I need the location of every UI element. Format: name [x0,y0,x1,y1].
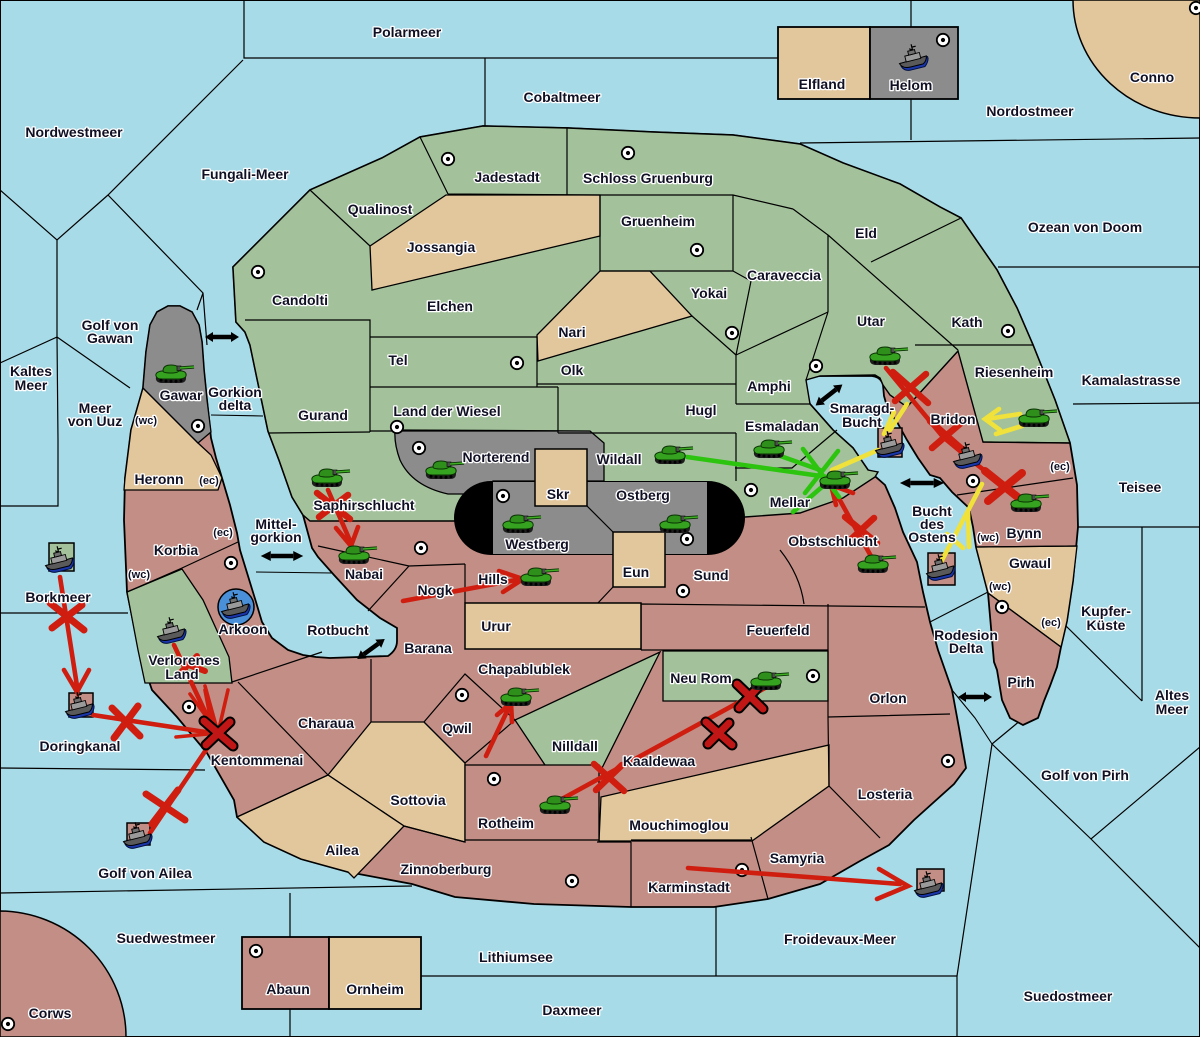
svg-text:Barana: Barana [404,640,452,656]
svg-text:Kamalastrasse: Kamalastrasse [1082,372,1181,388]
svg-text:Qualinost: Qualinost [348,201,413,217]
svg-text:Nabai: Nabai [345,566,383,582]
svg-text:Hugl: Hugl [685,402,716,418]
svg-text:Polarmeer: Polarmeer [373,24,442,40]
svg-text:Land der Wiesel: Land der Wiesel [393,403,500,419]
svg-text:Froidevaux-Meer: Froidevaux-Meer [784,931,897,947]
svg-text:Suedostmeer: Suedostmeer [1024,988,1113,1004]
svg-text:Gawar: Gawar [160,387,203,403]
svg-text:Olk: Olk [561,362,584,378]
svg-text:Ostberg: Ostberg [616,487,670,503]
svg-text:Rotbucht: Rotbucht [307,622,369,638]
svg-text:Daxmeer: Daxmeer [542,1002,602,1018]
svg-text:Meer: Meer [15,377,48,393]
svg-text:Delta: Delta [949,640,983,656]
svg-text:Skr: Skr [547,486,570,502]
svg-text:Nordostmeer: Nordostmeer [986,103,1074,119]
svg-text:Hills: Hills [478,571,508,587]
svg-text:Helom: Helom [890,77,933,93]
svg-text:Esmaladan: Esmaladan [745,418,819,434]
svg-text:Doringkanal: Doringkanal [40,738,121,754]
svg-text:Bucht: Bucht [842,414,882,430]
svg-text:Abaun: Abaun [266,981,310,997]
svg-text:Neu Rom: Neu Rom [670,670,731,686]
svg-text:Obstschlucht: Obstschlucht [788,533,878,549]
svg-text:Pirh: Pirh [1007,674,1034,690]
svg-text:Amphi: Amphi [747,378,791,394]
svg-text:Sottovia: Sottovia [390,792,445,808]
svg-text:Bridon: Bridon [930,411,975,427]
svg-text:Candolti: Candolti [272,292,328,308]
svg-text:Chapablublek: Chapablublek [478,661,570,677]
svg-text:Tel: Tel [388,352,407,368]
svg-text:Riesenheim: Riesenheim [975,364,1054,380]
svg-text:(ec): (ec) [1050,461,1070,473]
svg-text:Elfland: Elfland [799,76,846,92]
svg-text:(ec): (ec) [213,527,233,539]
svg-text:Norterend: Norterend [463,449,530,465]
svg-text:Schloss Gruenburg: Schloss Gruenburg [583,170,713,186]
svg-text:Bynn: Bynn [1007,525,1042,541]
svg-text:Saphirschlucht: Saphirschlucht [313,497,414,513]
svg-text:Jadestadt: Jadestadt [474,169,540,185]
svg-text:Mellar: Mellar [770,494,811,510]
svg-text:Kath: Kath [951,314,982,330]
svg-text:Nogk: Nogk [418,582,453,598]
svg-text:Losteria: Losteria [858,786,913,802]
svg-text:Sund: Sund [694,567,729,583]
svg-text:Rotheim: Rotheim [478,815,534,831]
svg-text:Nari: Nari [558,324,585,340]
svg-text:Kaaldewaa: Kaaldewaa [623,753,696,769]
svg-text:Arkoon: Arkoon [219,621,268,637]
svg-text:delta: delta [219,397,252,413]
svg-text:Kentommenai: Kentommenai [211,752,304,768]
svg-text:Borkmeer: Borkmeer [25,589,91,605]
svg-text:Cobaltmeer: Cobaltmeer [523,89,601,105]
svg-text:Heronn: Heronn [135,471,184,487]
svg-text:Utar: Utar [857,313,886,329]
svg-text:Gawan: Gawan [87,330,133,346]
svg-text:Fungali-Meer: Fungali-Meer [201,166,289,182]
svg-text:Nordwestmeer: Nordwestmeer [25,124,123,140]
svg-text:Ornheim: Ornheim [346,981,404,997]
svg-text:gorkion: gorkion [250,529,301,545]
svg-text:Golf von Pirh: Golf von Pirh [1041,767,1129,783]
svg-text:(wc): (wc) [128,569,150,581]
svg-text:Golf von Ailea: Golf von Ailea [98,865,192,881]
svg-text:(wc): (wc) [977,532,999,544]
svg-text:Teisee: Teisee [1119,479,1162,495]
svg-text:Samyria: Samyria [770,850,825,866]
svg-text:Jossangia: Jossangia [407,239,476,255]
svg-text:Land: Land [165,666,198,682]
svg-text:Caraveccia: Caraveccia [747,267,821,283]
svg-text:Yokai: Yokai [691,285,727,301]
svg-text:Wildall: Wildall [597,451,642,467]
svg-text:Orlon: Orlon [869,690,906,706]
svg-text:Gurand: Gurand [298,407,348,423]
svg-text:Lithiumsee: Lithiumsee [479,949,553,965]
svg-text:(wc): (wc) [135,415,157,427]
svg-text:Urur: Urur [481,618,511,634]
svg-text:Küste: Küste [1087,617,1126,633]
svg-text:Meer: Meer [1156,701,1189,717]
svg-text:von Uuz: von Uuz [68,413,122,429]
svg-text:Eun: Eun [623,564,649,580]
svg-text:(wc): (wc) [989,581,1011,593]
svg-text:Corws: Corws [29,1005,72,1021]
svg-text:Korbia: Korbia [154,542,199,558]
svg-text:Karminstadt: Karminstadt [648,879,730,895]
svg-text:Feuerfeld: Feuerfeld [746,622,809,638]
svg-text:Gruenheim: Gruenheim [621,213,695,229]
svg-text:Westberg: Westberg [505,536,569,552]
svg-text:Mouchimoglou: Mouchimoglou [629,817,729,833]
svg-text:Elchen: Elchen [427,298,473,314]
svg-text:Conno: Conno [1130,69,1174,85]
svg-text:Ailea: Ailea [325,842,359,858]
svg-text:Qwil: Qwil [442,720,472,736]
svg-text:(ec): (ec) [1041,617,1061,629]
svg-text:Ozean von Doom: Ozean von Doom [1028,219,1142,235]
svg-text:Gwaul: Gwaul [1009,555,1051,571]
svg-text:Ostens: Ostens [908,529,956,545]
svg-text:Charaua: Charaua [298,715,354,731]
svg-text:Nilldall: Nilldall [552,738,598,754]
svg-text:(ec): (ec) [199,475,219,487]
svg-text:Suedwestmeer: Suedwestmeer [117,930,216,946]
svg-text:Zinnoberburg: Zinnoberburg [401,861,492,877]
svg-text:Eld: Eld [855,225,877,241]
